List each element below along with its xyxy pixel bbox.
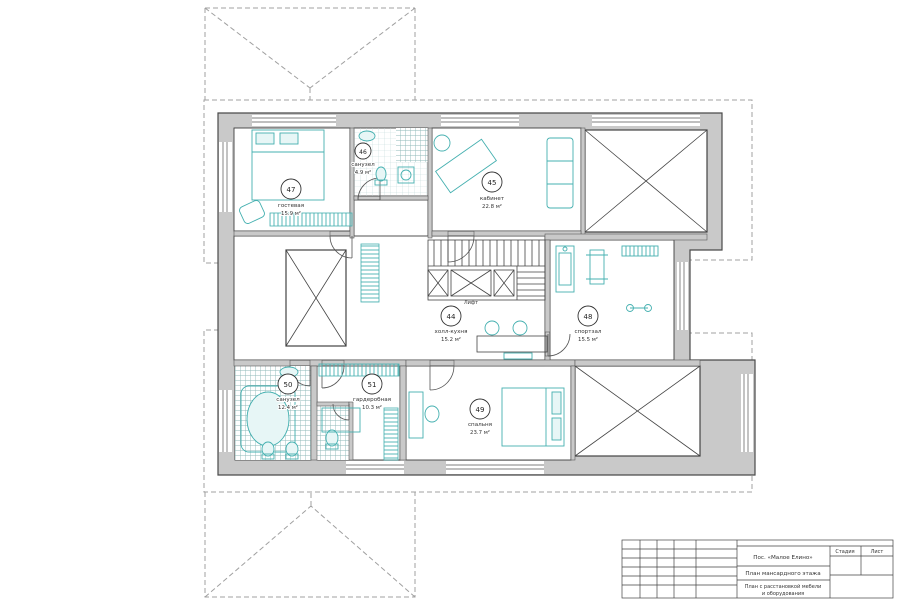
window-bottom-49 xyxy=(446,461,544,474)
void-left xyxy=(286,250,346,346)
floor-plan-drawing: Лифт xyxy=(0,0,900,600)
roof-top-outline xyxy=(205,8,415,100)
room-number: 46 xyxy=(359,149,367,156)
revision-table-grid xyxy=(622,540,737,598)
window-right-extension xyxy=(741,374,753,452)
wardrobe-rack-top xyxy=(319,364,399,376)
room-name: спальня xyxy=(468,422,492,428)
room-area: 12.4 м² xyxy=(278,404,298,411)
room-area: 4.9 м² xyxy=(355,169,372,176)
room-number: 48 xyxy=(584,313,593,321)
roof-bottom-outline xyxy=(205,492,415,597)
room-number: 49 xyxy=(476,406,485,414)
room-number: 44 xyxy=(447,313,456,321)
room-name: кабинет xyxy=(480,196,505,202)
room-number: 45 xyxy=(488,179,497,187)
room-number: 51 xyxy=(368,381,377,389)
room-45-office xyxy=(432,128,581,231)
window-top-void xyxy=(592,115,700,126)
void-top-right xyxy=(585,130,707,232)
window-left-47 xyxy=(219,142,232,212)
room-area: 10.3 м² xyxy=(362,404,382,411)
lift-label: Лифт xyxy=(464,300,478,306)
window-bottom-51 xyxy=(346,461,404,474)
sheet-title-line1: План с расстановкой мебели xyxy=(745,583,822,590)
room-name: санузел xyxy=(276,397,300,403)
sheet-header: Лист xyxy=(871,549,884,555)
hall-room-44 xyxy=(234,236,545,360)
room-name: гостевая xyxy=(278,203,304,209)
room-name: холл-кухня xyxy=(435,329,468,335)
wardrobe-rack-right xyxy=(384,408,398,460)
room-name: спортзал xyxy=(575,329,602,335)
window-top-45 xyxy=(441,115,519,126)
drawing-title: План мансардного этажа xyxy=(745,571,820,577)
vestibule xyxy=(354,200,428,238)
hall-shelving xyxy=(361,244,379,302)
stage-header: Стадия xyxy=(835,549,854,555)
sink-icon-46 xyxy=(359,131,375,141)
room-area: 15.2 м² xyxy=(441,336,461,343)
room-area: 23.7 м² xyxy=(470,429,490,436)
room-number: 50 xyxy=(284,381,293,389)
room-name: санузел xyxy=(351,162,375,168)
room-number: 47 xyxy=(287,186,296,194)
tile-floor-46-dark xyxy=(396,128,428,162)
window-right-gym xyxy=(677,262,688,330)
window-top-47 xyxy=(252,115,336,126)
room-area: 15.9 м² xyxy=(281,210,301,217)
title-block: Пос. «Малое Елино» План мансардного этаж… xyxy=(622,540,893,598)
floor-plan-canvas: Лифт xyxy=(0,0,900,600)
sheet-title-line2: и оборудования xyxy=(762,591,804,597)
room-area: 22.8 м² xyxy=(482,203,502,210)
window-left-50 xyxy=(219,390,232,452)
project-name: Пос. «Малое Елино» xyxy=(753,555,812,561)
room-area: 15.5 м² xyxy=(578,336,598,343)
room-name: гардеробная xyxy=(353,397,391,403)
void-bottom-right xyxy=(575,366,700,456)
